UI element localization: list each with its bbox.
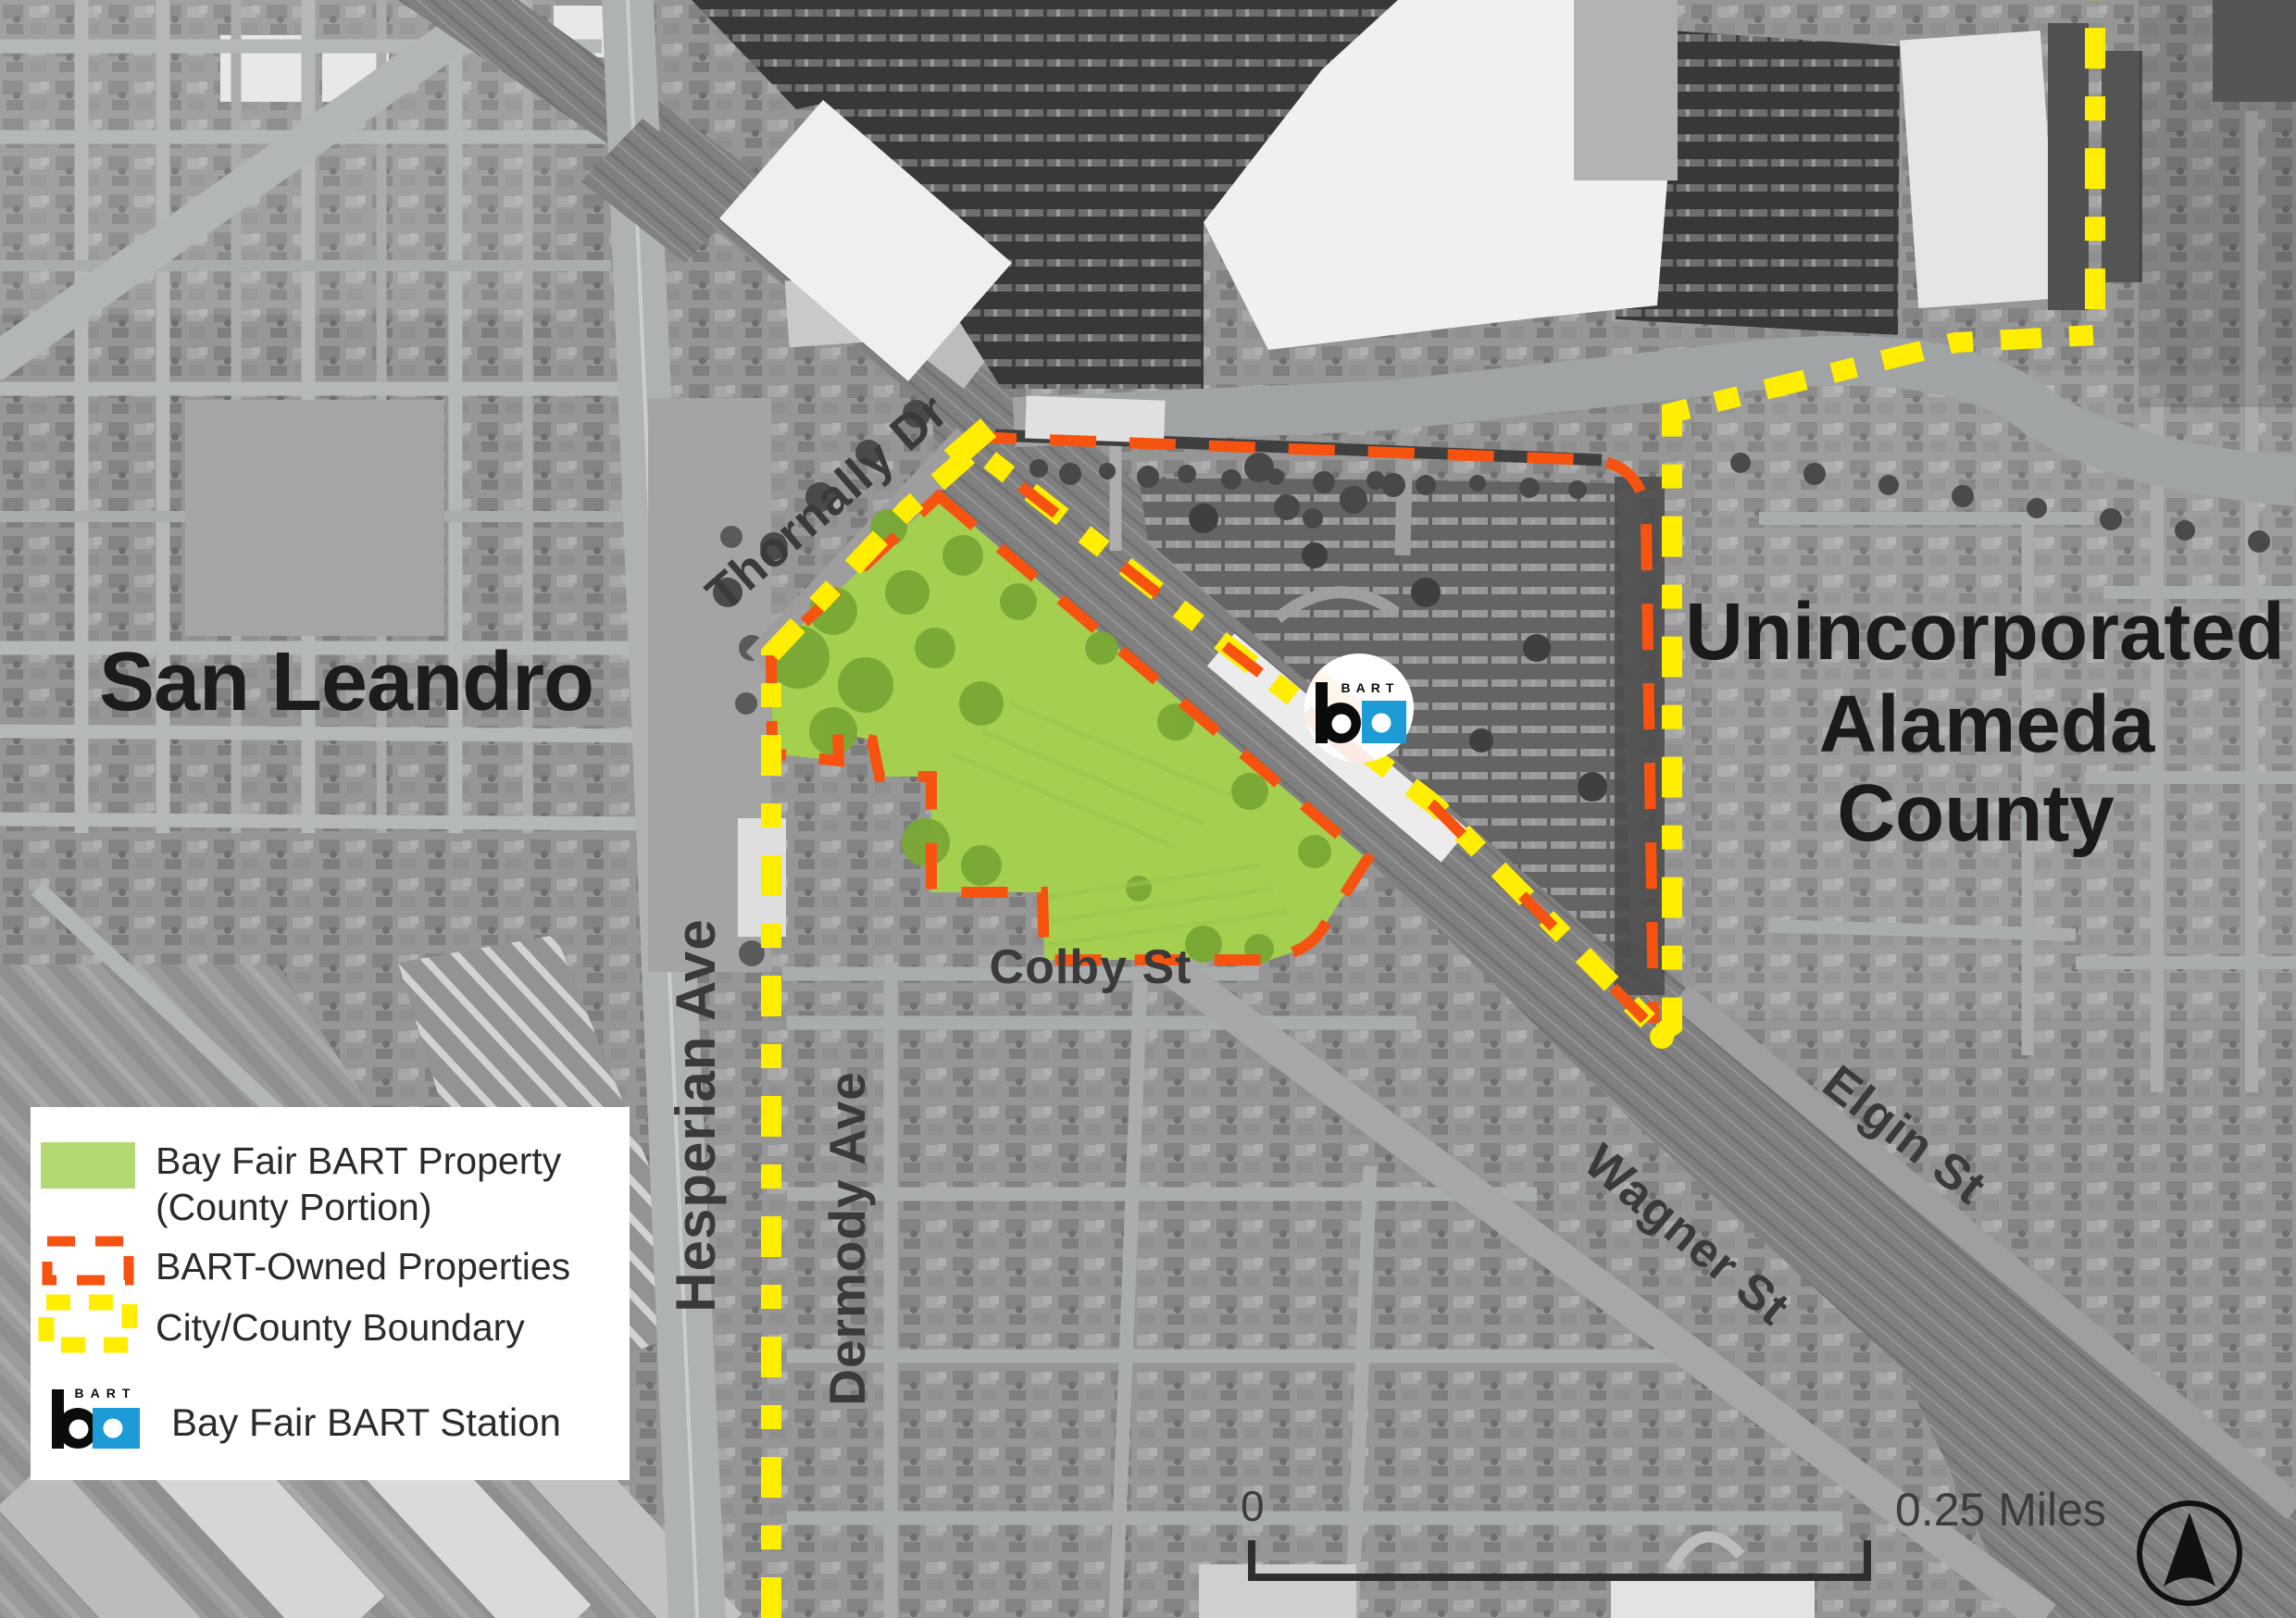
svg-text:Colby St: Colby St: [990, 940, 1192, 994]
svg-text:County: County: [1837, 768, 2115, 858]
svg-text:0.25 Miles: 0.25 Miles: [1895, 1484, 2106, 1536]
svg-text:Bay Fair BART Station: Bay Fair BART Station: [171, 1400, 561, 1444]
svg-text:BART: BART: [75, 1386, 137, 1400]
svg-text:Dermody Ave: Dermody Ave: [818, 1071, 876, 1406]
svg-text:BART-Owned Properties: BART-Owned Properties: [156, 1245, 570, 1288]
svg-text:BART: BART: [1341, 680, 1400, 695]
svg-text:(County Portion): (County Portion): [156, 1186, 432, 1228]
svg-text:Bay Fair BART Property: Bay Fair BART Property: [156, 1139, 562, 1182]
svg-text:City/County Boundary: City/County Boundary: [156, 1306, 525, 1349]
svg-text:San Leandro: San Leandro: [99, 636, 593, 728]
svg-text:0: 0: [1241, 1482, 1265, 1530]
svg-text:Alameda: Alameda: [1819, 679, 2155, 769]
svg-text:Unincorporated: Unincorporated: [1685, 587, 2285, 677]
svg-text:Hesperian Ave: Hesperian Ave: [665, 918, 727, 1312]
